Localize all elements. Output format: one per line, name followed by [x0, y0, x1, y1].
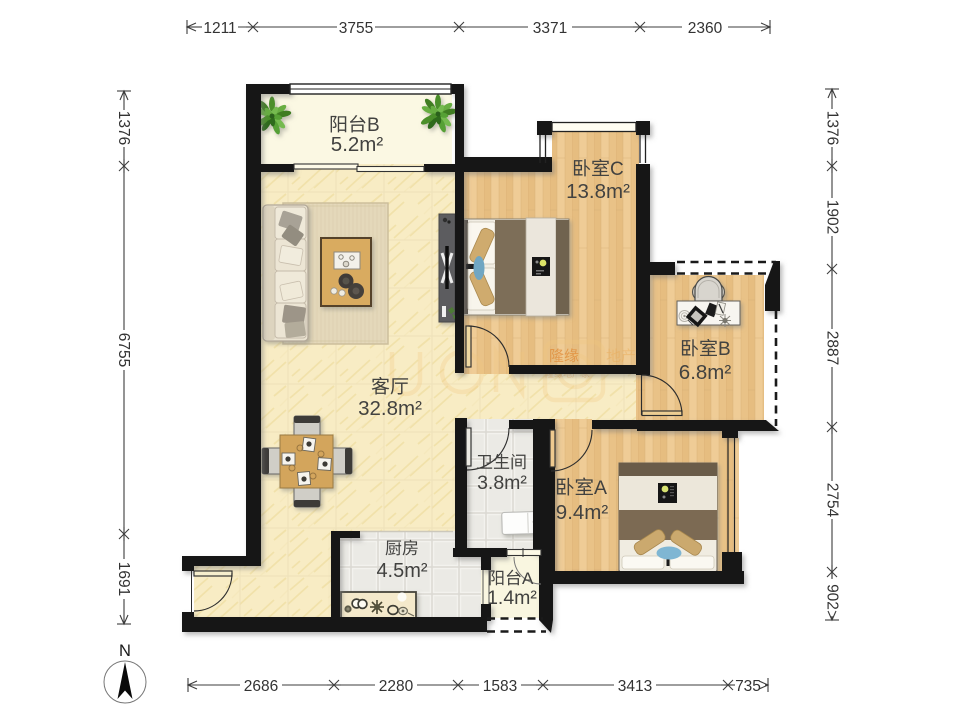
svg-text:1691: 1691 — [115, 562, 132, 596]
svg-text:902: 902 — [824, 584, 841, 610]
svg-text:A: A — [522, 569, 534, 588]
svg-text:6.8m²: 6.8m² — [679, 361, 732, 384]
svg-text:5.2m²: 5.2m² — [331, 133, 384, 156]
svg-text:A: A — [594, 477, 607, 499]
svg-text:1211: 1211 — [203, 20, 236, 37]
svg-text:1902: 1902 — [824, 200, 841, 234]
svg-text:1376: 1376 — [824, 111, 841, 145]
svg-text:6755: 6755 — [115, 333, 132, 367]
svg-text:2754: 2754 — [824, 483, 841, 518]
svg-text:C: C — [610, 159, 624, 180]
svg-text:2360: 2360 — [688, 20, 723, 37]
svg-text:3755: 3755 — [339, 20, 373, 37]
svg-text:2686: 2686 — [244, 678, 278, 695]
svg-text:32.8m²: 32.8m² — [358, 397, 422, 420]
svg-text:2280: 2280 — [379, 678, 414, 695]
svg-text:1376: 1376 — [115, 111, 132, 145]
svg-text:1.4m²: 1.4m² — [487, 587, 537, 609]
svg-text:735: 735 — [735, 678, 761, 695]
svg-text:1583: 1583 — [483, 678, 517, 695]
svg-text:13.8m²: 13.8m² — [566, 180, 630, 203]
svg-text:B: B — [718, 339, 731, 360]
svg-text:N: N — [119, 642, 131, 660]
svg-text:4.5m²: 4.5m² — [376, 560, 427, 582]
svg-text:3.8m²: 3.8m² — [477, 472, 527, 494]
svg-text:9.4m²: 9.4m² — [556, 501, 609, 524]
svg-text:3413: 3413 — [618, 678, 652, 695]
svg-text:2887: 2887 — [824, 331, 841, 365]
svg-text:3371: 3371 — [533, 20, 567, 37]
